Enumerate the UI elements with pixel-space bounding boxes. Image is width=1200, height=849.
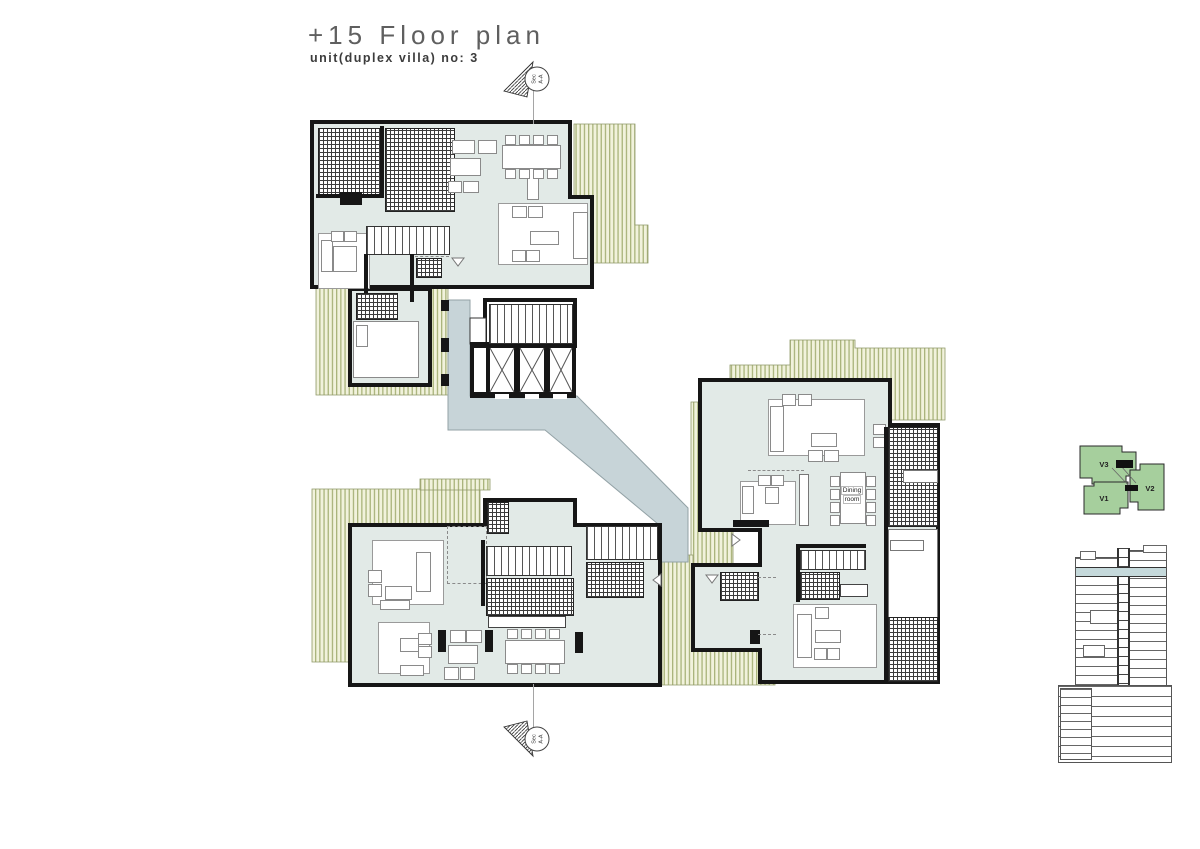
stair-wall	[796, 544, 866, 548]
armchair	[418, 646, 432, 658]
dining-room-label-line1: Dining	[841, 486, 863, 495]
armchair	[368, 584, 382, 597]
chair	[521, 629, 532, 639]
console-shelf	[840, 584, 868, 597]
armchair	[368, 570, 382, 583]
coffee-table	[811, 433, 837, 447]
closet-hatch	[356, 293, 398, 320]
stairs	[486, 546, 572, 576]
partition-wall	[380, 126, 384, 198]
terrace-void-hatch	[888, 617, 938, 682]
sofa	[797, 614, 812, 658]
coffee-table	[385, 586, 412, 600]
console-shelf	[488, 616, 566, 628]
wall-stub	[733, 520, 769, 527]
key-plan-label-v1: V1	[1099, 494, 1108, 503]
armchair	[815, 607, 829, 619]
chair	[519, 169, 530, 179]
chair	[533, 169, 544, 179]
coffee-table	[765, 487, 779, 504]
closet-hatch	[720, 572, 759, 601]
pillow	[356, 325, 368, 347]
armchair	[444, 667, 459, 680]
section-parapet	[1080, 551, 1096, 560]
armchair	[771, 475, 784, 486]
wall-stub	[438, 630, 446, 652]
sofa	[573, 212, 588, 259]
void-hatch-small	[416, 258, 442, 278]
stair-wall	[481, 540, 485, 606]
threshold-dashed-line	[415, 256, 449, 257]
chair	[535, 629, 546, 639]
dining-table	[505, 640, 565, 664]
armchair	[460, 667, 475, 680]
lounge-seat	[333, 246, 357, 272]
elevator-shaft	[490, 348, 514, 392]
kitchen-cabinet	[463, 181, 479, 193]
stool	[526, 250, 540, 262]
dining-room-label-line2: room	[843, 495, 862, 504]
core-stairs	[489, 304, 573, 344]
drawing-sheet: Sec A-A Sec A-A V3 V2 V1 +15 Floor plan …	[0, 0, 1200, 849]
stairs	[366, 226, 450, 255]
chair	[507, 664, 518, 674]
coffee-table	[448, 645, 478, 664]
armchair	[758, 475, 771, 486]
wall-stub	[575, 632, 583, 653]
stool	[824, 450, 839, 462]
wall-stub	[485, 630, 493, 652]
wall-stub	[750, 630, 760, 644]
sofa	[742, 486, 754, 514]
stairs	[800, 550, 866, 570]
armchair	[344, 231, 357, 242]
threshold-dashed-line	[758, 634, 776, 635]
console-shelf	[799, 474, 809, 526]
armchair	[528, 206, 543, 218]
stool	[512, 250, 526, 262]
door-swing-marker	[732, 534, 740, 546]
armchair	[331, 231, 344, 242]
section-setback	[1083, 645, 1105, 657]
key-plan-core	[1125, 485, 1138, 491]
stool	[814, 648, 827, 660]
building-section	[1055, 545, 1173, 767]
sofa	[321, 240, 333, 272]
chair	[505, 135, 516, 145]
section-marker-label: Sec	[532, 74, 538, 84]
coffee-table	[400, 638, 419, 652]
key-plan: V3 V2 V1	[1080, 446, 1164, 514]
armchair	[798, 394, 812, 406]
sheet-subtitle: unit(duplex villa) no: 3	[310, 51, 479, 65]
wall-stub	[340, 192, 362, 205]
stool	[827, 648, 840, 660]
kitchen-cabinet	[452, 140, 475, 154]
key-plan-core	[1116, 460, 1133, 468]
kitchen-cabinet	[478, 140, 497, 154]
stair-void-hatch	[586, 562, 644, 598]
key-plan-label-v2: V2	[1145, 484, 1154, 493]
armchair	[466, 630, 482, 643]
section-cut-marker-bottom: Sec A-A	[504, 721, 549, 756]
chair	[519, 135, 530, 145]
section-setback	[1090, 610, 1120, 624]
stair-void-hatch	[800, 572, 840, 600]
dining-table	[502, 145, 561, 169]
chair	[549, 664, 560, 674]
threshold-dashed-line	[758, 577, 776, 578]
planter	[903, 470, 938, 483]
chair	[507, 629, 518, 639]
stairs	[586, 526, 658, 560]
section-marker-label: Sec	[532, 734, 538, 744]
armchair	[782, 394, 796, 406]
kitchen-island	[450, 158, 481, 176]
chair	[866, 515, 876, 526]
elevator-doors	[495, 394, 567, 399]
section-marker-label: A-A	[539, 734, 545, 744]
section-cut-marker-top: Sec A-A	[504, 62, 549, 97]
chair	[547, 135, 558, 145]
planter	[890, 540, 924, 551]
section-parapet	[1143, 545, 1167, 553]
stair-void-hatch	[486, 578, 574, 616]
chair	[547, 169, 558, 179]
chair	[549, 629, 560, 639]
balcony-v1-north-step	[420, 479, 490, 490]
floor-plan-drawing: Sec A-A Sec A-A V3 V2 V1	[0, 0, 1200, 849]
chair	[505, 169, 516, 179]
bench	[380, 600, 410, 610]
sofa	[416, 552, 431, 592]
sheet-title: +15 Floor plan	[308, 20, 545, 51]
void-hatch-room	[385, 128, 455, 212]
coffee-table	[530, 231, 559, 245]
elevator-lobby-cell	[474, 348, 486, 392]
coffee-table	[815, 630, 841, 643]
elevator-shaft	[520, 348, 544, 392]
core-service-room	[470, 318, 486, 344]
bench	[400, 665, 424, 676]
void-hatch-room	[318, 128, 382, 198]
stair-wall	[410, 254, 414, 302]
sofa	[770, 406, 784, 452]
section-highlight-floor-15	[1076, 567, 1166, 577]
key-plan-label-v3: V3	[1099, 460, 1108, 469]
kitchen-cabinet	[448, 181, 462, 193]
armchair	[418, 633, 432, 645]
stool	[808, 450, 823, 462]
dining-room-label: Dining room	[836, 486, 868, 504]
chair	[830, 515, 840, 526]
chair	[535, 664, 546, 674]
entry-hatch	[487, 502, 509, 534]
elevator-shaft	[550, 348, 572, 392]
chair	[533, 135, 544, 145]
section-podium-stairs	[1060, 688, 1092, 760]
section-marker-label: A-A	[539, 74, 545, 84]
armchair	[512, 206, 527, 218]
armchair	[450, 630, 466, 643]
chair	[521, 664, 532, 674]
threshold-dashed-line	[748, 470, 804, 471]
